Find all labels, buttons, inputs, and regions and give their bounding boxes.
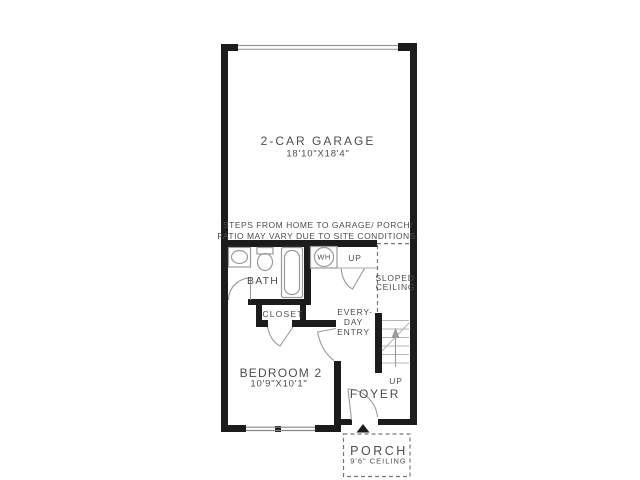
foyer-label: FOYER — [350, 388, 400, 400]
sloped-ceiling-label-2: CEILING — [376, 283, 416, 292]
everyday-entry-label-1: EVERY- — [337, 307, 373, 316]
garage-label: 2-CAR GARAGE — [261, 135, 376, 147]
wall — [378, 419, 417, 425]
bedroom2-label: BEDROOM 2 — [240, 367, 323, 379]
wall — [256, 320, 268, 327]
entry-triangle-icon — [357, 424, 370, 433]
wall — [248, 299, 311, 305]
water-heater-label: WH — [317, 253, 330, 261]
garage-dimensions: 18'10"X18'4" — [286, 149, 349, 159]
closet-door-swing-icon — [268, 327, 294, 346]
wall — [375, 313, 382, 373]
sink-icon — [229, 248, 251, 268]
bath-label: BATH — [247, 276, 279, 287]
everyday-entry-label-2: DAY — [344, 317, 363, 326]
up-stairs-label: UP — [389, 376, 402, 385]
stairs-icon — [382, 321, 409, 368]
wall — [221, 425, 246, 432]
toilet-icon — [257, 248, 273, 271]
bedroom-door-swing-icon — [318, 329, 337, 361]
garage-entry-door-swing-icon — [341, 269, 365, 290]
up-garage-steps-label: UP — [348, 254, 361, 263]
garage-door-icon — [238, 46, 398, 50]
wall — [221, 240, 377, 247]
closet-label: CLOSET — [262, 310, 303, 319]
site-note-line-1: STEPS FROM HOME TO GARAGE/ PORCH/ — [223, 221, 413, 230]
porch-ceiling-label: 9'6" CEILING — [350, 457, 407, 465]
wall — [334, 419, 352, 425]
floor-plan: 2-CAR GARAGE 18'10"X18'4" STEPS FROM HOM… — [0, 0, 640, 480]
wall — [315, 425, 341, 432]
bathtub-icon — [282, 248, 303, 298]
wall — [334, 361, 341, 425]
everyday-entry-label-3: ENTRY — [337, 327, 370, 336]
bedroom2-dimensions: 10'9"X10'1" — [250, 379, 307, 389]
wall — [292, 320, 336, 327]
site-note-line-2: PATIO MAY VARY DUE TO SITE CONDITIONS. — [217, 231, 418, 240]
